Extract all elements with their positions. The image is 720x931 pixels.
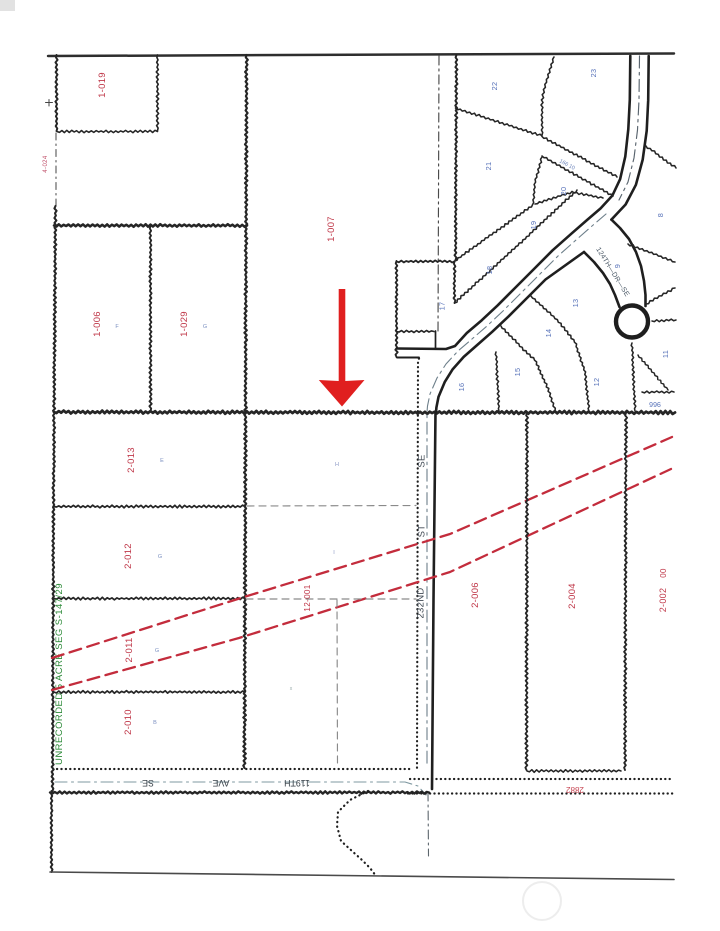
svg-text:23: 23 bbox=[589, 69, 598, 78]
svg-text:1-007: 1-007 bbox=[326, 216, 337, 242]
svg-text:E: E bbox=[160, 458, 164, 464]
svg-text:9: 9 bbox=[613, 264, 622, 268]
svg-text:G: G bbox=[155, 648, 159, 654]
svg-text:12-001: 12-001 bbox=[303, 584, 312, 611]
svg-text:2-006: 2-006 bbox=[470, 582, 481, 608]
svg-text:13: 13 bbox=[571, 299, 580, 308]
svg-text:AVE: AVE bbox=[212, 778, 229, 788]
svg-text:11: 11 bbox=[661, 350, 670, 358]
svg-text:H: H bbox=[335, 462, 339, 468]
svg-text:2-013: 2-013 bbox=[126, 447, 137, 473]
svg-text:12: 12 bbox=[592, 378, 601, 387]
svg-text:2-010: 2-010 bbox=[123, 709, 134, 735]
svg-text:1-006: 1-006 bbox=[92, 311, 103, 337]
svg-text:8: 8 bbox=[656, 213, 665, 217]
svg-text:2882: 2882 bbox=[566, 785, 584, 794]
svg-text:20: 20 bbox=[559, 187, 568, 196]
svg-text:2-004: 2-004 bbox=[567, 583, 578, 609]
svg-text:119TH: 119TH bbox=[284, 778, 310, 788]
svg-text:G: G bbox=[158, 554, 162, 560]
svg-text:x: x bbox=[290, 686, 293, 692]
svg-text:4-024: 4-024 bbox=[43, 155, 49, 173]
svg-text:G: G bbox=[203, 324, 207, 330]
svg-text:14: 14 bbox=[544, 329, 553, 338]
svg-text:18: 18 bbox=[485, 266, 494, 275]
svg-text:15: 15 bbox=[513, 368, 522, 377]
svg-text:SE: SE bbox=[417, 454, 428, 467]
svg-text:B: B bbox=[153, 720, 157, 726]
svg-text:22: 22 bbox=[490, 82, 499, 91]
svg-text:17: 17 bbox=[438, 302, 447, 311]
svg-text:2-002: 2-002 bbox=[658, 588, 668, 613]
svg-text:F: F bbox=[115, 324, 119, 330]
svg-text:1-029: 1-029 bbox=[179, 311, 190, 337]
svg-text:UNRECORDED 5 ACRE SEG S-147/29: UNRECORDED 5 ACRE SEG S-147/29 bbox=[54, 583, 65, 765]
svg-text:2-011: 2-011 bbox=[124, 637, 135, 662]
svg-text:00: 00 bbox=[659, 568, 668, 578]
svg-text:19: 19 bbox=[529, 221, 538, 230]
svg-text:I: I bbox=[333, 550, 335, 556]
svg-text:ST: ST bbox=[417, 525, 428, 538]
svg-text:SE: SE bbox=[142, 778, 154, 788]
svg-text:16: 16 bbox=[457, 383, 466, 392]
svg-text:1-019: 1-019 bbox=[97, 72, 108, 98]
svg-text:232ND: 232ND bbox=[416, 587, 427, 618]
svg-text:2-012: 2-012 bbox=[123, 543, 134, 569]
svg-text:21: 21 bbox=[484, 162, 493, 171]
svg-text:966: 966 bbox=[649, 400, 661, 407]
